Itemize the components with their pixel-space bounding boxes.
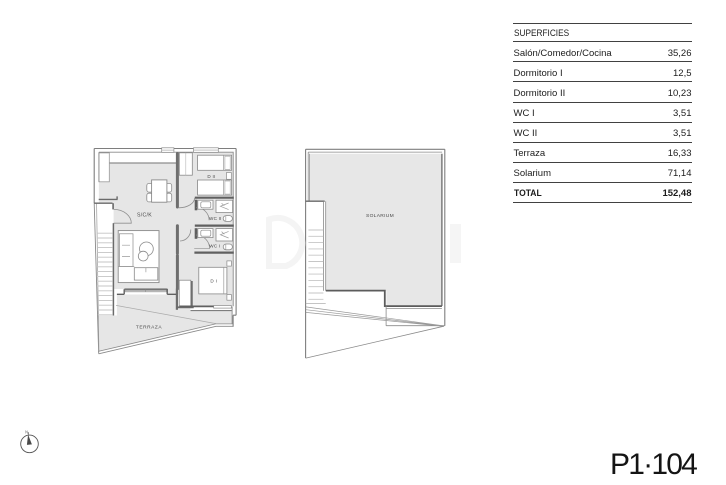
svg-text:SOLARIUM: SOLARIUM <box>366 213 394 219</box>
svg-text:D I: D I <box>210 279 217 284</box>
svg-text:D II: D II <box>207 174 215 179</box>
svg-text:TERRAZA: TERRAZA <box>136 325 162 331</box>
svg-text:N: N <box>25 429 28 434</box>
svg-text:WC II: WC II <box>209 216 221 221</box>
svg-text:WC I: WC I <box>209 244 220 249</box>
svg-text:S/C/K: S/C/K <box>137 213 152 219</box>
